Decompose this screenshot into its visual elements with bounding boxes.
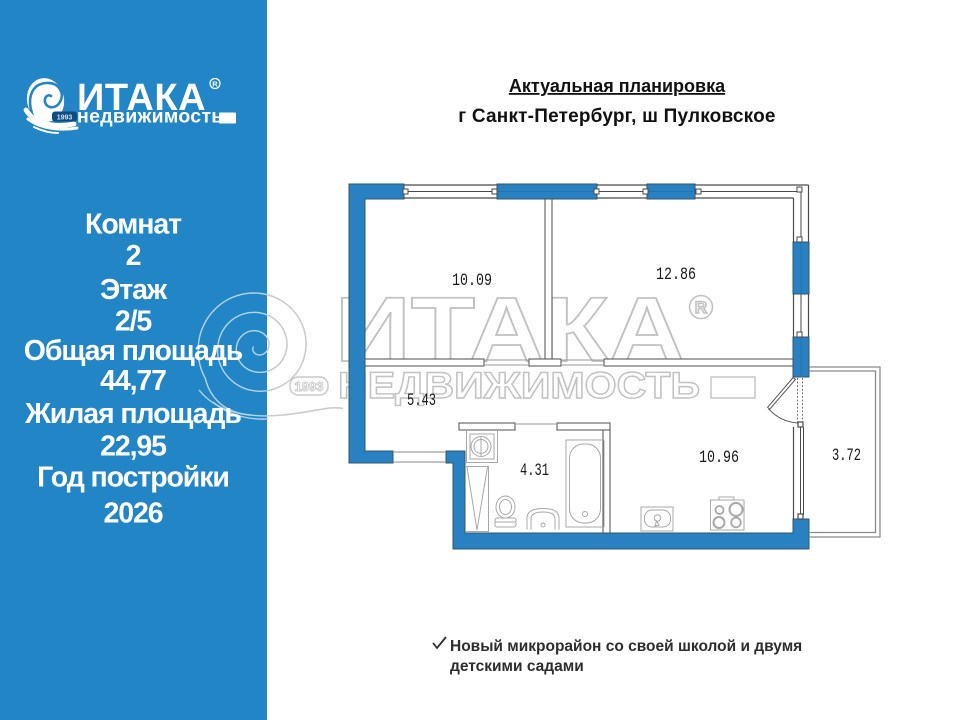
svg-text:22,95: 22,95 <box>100 431 167 463</box>
svg-text:R: R <box>695 298 707 317</box>
svg-text:2: 2 <box>126 240 141 272</box>
svg-text:10.09: 10.09 <box>452 271 492 291</box>
svg-text:12.86: 12.86 <box>656 265 696 285</box>
svg-text:Комнат: Комнат <box>85 209 182 241</box>
svg-text:44,77: 44,77 <box>100 365 166 397</box>
svg-text:2026: 2026 <box>103 498 162 530</box>
svg-text:5.43: 5.43 <box>407 391 436 411</box>
svg-text:НЕДВИЖИМОСТЬ: НЕДВИЖИМОСТЬ <box>338 365 700 406</box>
svg-text:10.96: 10.96 <box>699 448 739 468</box>
svg-text:1993: 1993 <box>57 114 73 121</box>
svg-text:R: R <box>212 80 218 89</box>
svg-text:3.72: 3.72 <box>832 446 861 466</box>
svg-text:4.31: 4.31 <box>520 461 549 481</box>
svg-text:детскими садами: детскими садами <box>450 658 584 675</box>
svg-text:г Санкт-Петербург, ш Пулковско: г Санкт-Петербург, ш Пулковское <box>458 106 775 127</box>
svg-text:Год постройки: Год постройки <box>37 462 229 494</box>
svg-text:Этаж: Этаж <box>100 274 168 306</box>
svg-text:недвижимость: недвижимость <box>77 106 224 128</box>
svg-text:Общая площадь: Общая площадь <box>24 335 243 367</box>
svg-text:1993: 1993 <box>295 379 324 394</box>
svg-text:Жилая площадь: Жилая площадь <box>24 398 241 430</box>
svg-text:2/5: 2/5 <box>115 306 153 338</box>
svg-text:Новый микрорайон со своей школ: Новый микрорайон со своей школой и двумя <box>450 638 802 655</box>
svg-text:Актуальная планировка: Актуальная планировка <box>509 76 726 96</box>
